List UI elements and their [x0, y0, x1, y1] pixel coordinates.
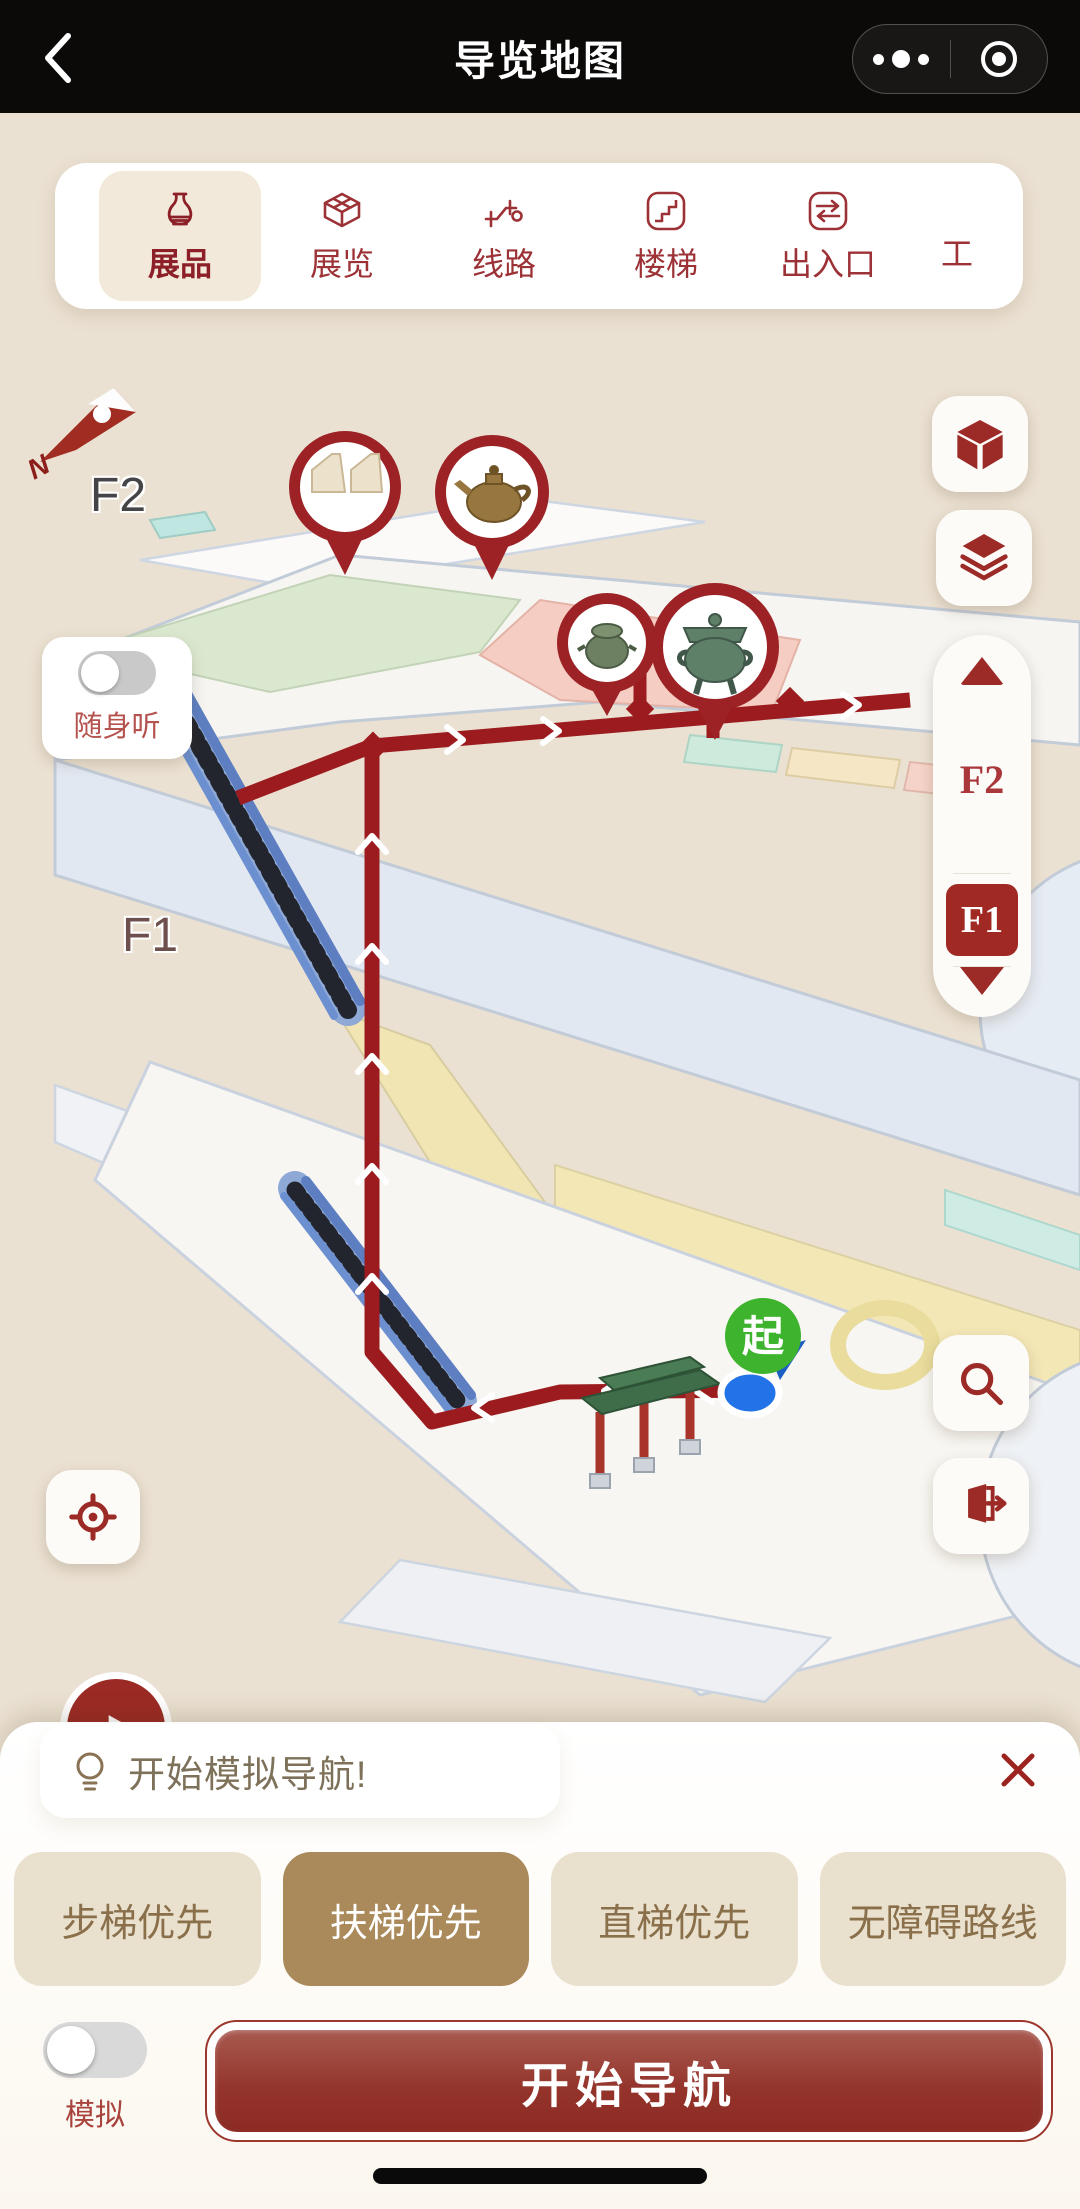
- box-icon: [318, 187, 366, 235]
- tab-exhibitions[interactable]: 展览: [261, 171, 423, 301]
- locate-icon: [63, 1487, 123, 1547]
- tab-exhibits[interactable]: 展品: [99, 171, 261, 301]
- simulate-label: 模拟: [65, 2090, 125, 2134]
- route-options: 步梯优先 扶梯优先 直梯优先 无障碍路线: [14, 1852, 1066, 1986]
- simulate-control: 模拟: [40, 2022, 150, 2134]
- layers-button[interactable]: [936, 510, 1032, 606]
- home-indicator: [373, 2168, 707, 2184]
- navigation-sheet: 开始模拟导航! 步梯优先 扶梯优先 直梯优先 无障碍路线 模拟 开始导航: [0, 1722, 1080, 2209]
- svg-text:起: 起: [742, 1313, 785, 1360]
- bulb-icon: [68, 1747, 112, 1795]
- entrance-exit-icon: [804, 187, 852, 235]
- floor-item-f2[interactable]: F2: [933, 685, 1031, 873]
- exit-door-icon: [950, 1475, 1012, 1537]
- route-icon: [480, 187, 528, 235]
- search-button[interactable]: [933, 1335, 1029, 1431]
- audio-guide-card[interactable]: 随身听: [42, 637, 192, 759]
- tab-entrances[interactable]: 出入口: [747, 171, 909, 301]
- map-floor-label-f2: F2: [90, 468, 146, 523]
- app-screen: 起: [0, 0, 1080, 2209]
- navbar: 导览地图: [0, 0, 1080, 113]
- floor-item-f1-selected[interactable]: F1: [946, 884, 1018, 956]
- tab-stairs[interactable]: 楼梯: [585, 171, 747, 301]
- option-elevator-first[interactable]: 直梯优先: [551, 1852, 798, 1986]
- close-miniprogram-button[interactable]: [951, 25, 1048, 93]
- up-arrow-icon: [960, 657, 1004, 685]
- option-accessible-route[interactable]: 无障碍路线: [820, 1852, 1067, 1986]
- search-icon: [950, 1352, 1012, 1414]
- simulation-tip-text: 开始模拟导航!: [128, 1744, 367, 1798]
- tab-routes[interactable]: 线路: [423, 171, 585, 301]
- simulation-tip: 开始模拟导航!: [40, 1724, 560, 1818]
- layers-icon: [952, 526, 1016, 590]
- capsule-home-icon: [981, 41, 1017, 77]
- audio-guide-label: 随身听: [73, 703, 160, 745]
- option-escalator-first[interactable]: 扶梯优先: [283, 1852, 530, 1986]
- view-3d-button[interactable]: [932, 396, 1028, 492]
- cube-icon: [948, 412, 1012, 476]
- down-arrow-icon: [960, 967, 1004, 995]
- floor-f1-plan: [55, 760, 1080, 1702]
- stairs-icon: [642, 187, 690, 235]
- floor-selector: F2 F1: [933, 635, 1031, 1017]
- floor-up-button[interactable]: [960, 635, 1004, 685]
- close-icon: [996, 1748, 1040, 1792]
- locate-button[interactable]: [46, 1470, 140, 1564]
- floor-down-button[interactable]: [960, 967, 1004, 1017]
- more-button[interactable]: [853, 25, 950, 93]
- vase-icon: [156, 187, 204, 235]
- tab-partial[interactable]: 工: [909, 171, 1005, 301]
- category-tabbar: 展品 展览 线路 楼梯: [55, 163, 1023, 309]
- close-sheet-button[interactable]: [990, 1742, 1046, 1798]
- audio-guide-toggle[interactable]: [78, 651, 156, 695]
- start-navigation-label: 开始导航: [215, 2030, 1043, 2132]
- option-stairs-first[interactable]: 步梯优先: [14, 1852, 261, 1986]
- map-floor-label-f1: F1: [122, 908, 178, 963]
- simulate-toggle[interactable]: [43, 2022, 147, 2078]
- start-navigation-button[interactable]: 开始导航: [205, 2020, 1053, 2142]
- more-icon: [873, 54, 884, 65]
- miniprogram-capsule: [852, 24, 1048, 94]
- exit-button[interactable]: [933, 1458, 1029, 1554]
